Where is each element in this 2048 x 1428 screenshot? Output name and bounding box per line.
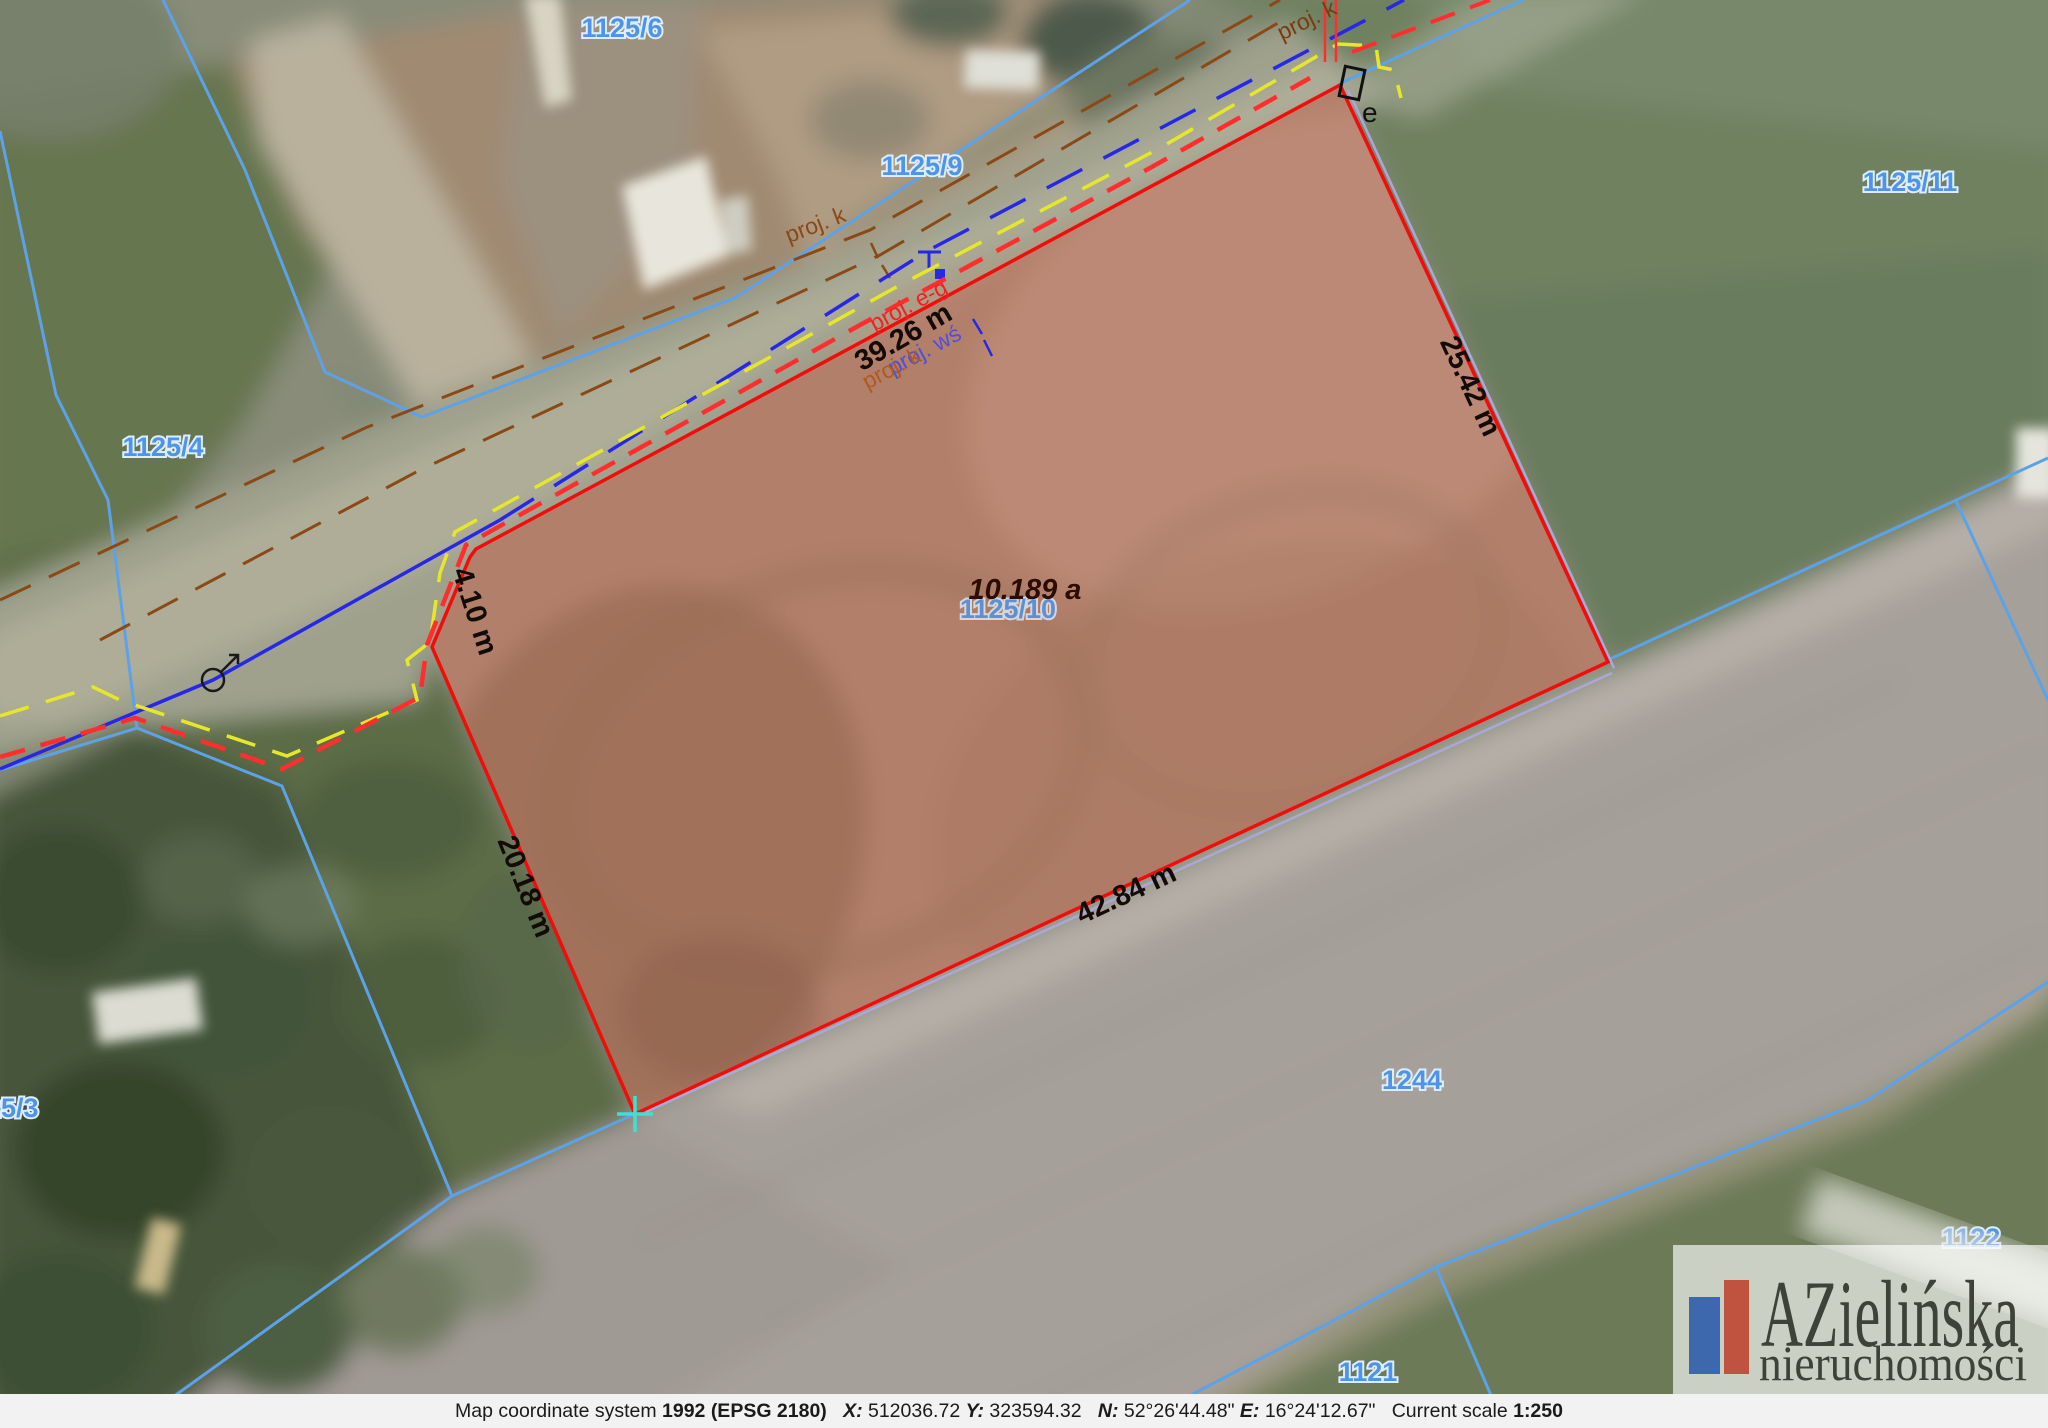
svg-text:1125/11: 1125/11 — [1863, 167, 1958, 197]
svg-text:1244: 1244 — [1382, 1065, 1442, 1095]
svg-text:e: e — [1362, 97, 1378, 128]
svg-text:1121: 1121 — [1339, 1357, 1398, 1387]
svg-text:Map coordinate system 1992 (EP: Map coordinate system 1992 (EPSG 2180) X… — [455, 1400, 1563, 1422]
svg-text:nieruchomości: nieruchomości — [1759, 1335, 2027, 1391]
svg-text:1125/9: 1125/9 — [881, 151, 962, 181]
svg-text:1125/4: 1125/4 — [122, 432, 203, 462]
svg-text:1125/6: 1125/6 — [581, 13, 662, 43]
svg-text:25/3: 25/3 — [0, 1093, 39, 1123]
svg-text:10.189 a: 10.189 a — [969, 574, 1082, 606]
